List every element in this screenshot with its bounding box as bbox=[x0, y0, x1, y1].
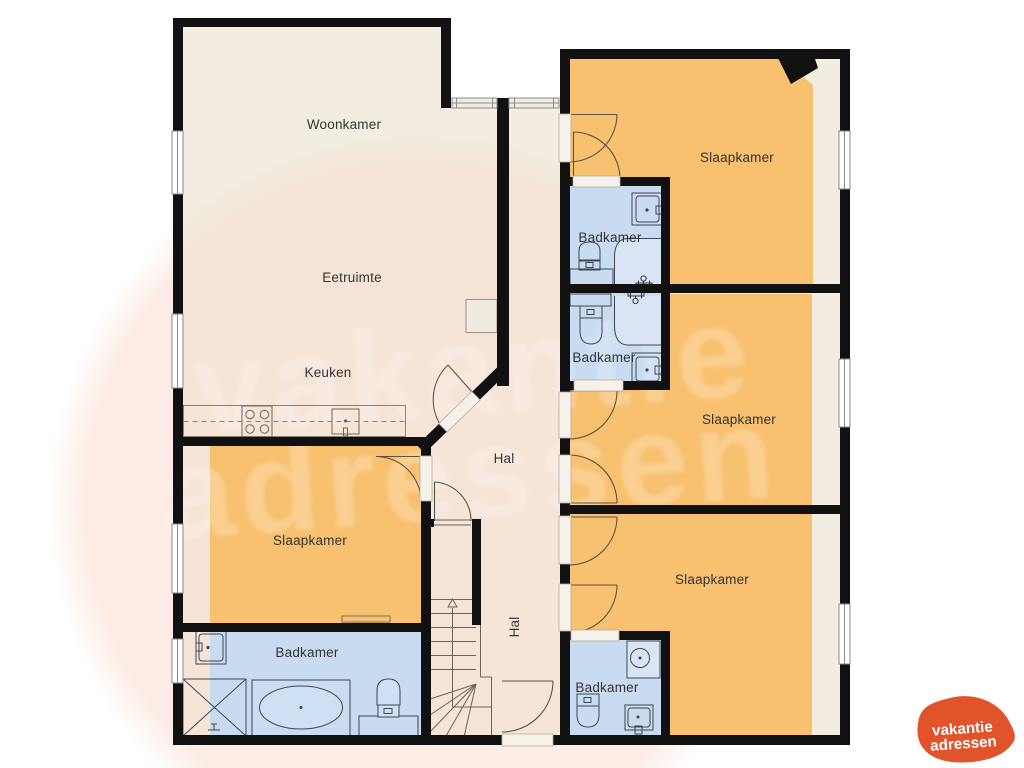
svg-text:Badkamer: Badkamer bbox=[575, 680, 638, 695]
svg-text:Badkamer: Badkamer bbox=[572, 350, 635, 365]
svg-text:Slaapkamer: Slaapkamer bbox=[702, 412, 776, 427]
svg-text:Badkamer: Badkamer bbox=[578, 230, 641, 245]
svg-text:Slaapkamer: Slaapkamer bbox=[675, 572, 749, 587]
svg-text:Woonkamer: Woonkamer bbox=[307, 117, 382, 132]
svg-text:Slaapkamer: Slaapkamer bbox=[273, 533, 347, 548]
svg-text:Keuken: Keuken bbox=[305, 365, 352, 380]
svg-text:Eetruimte: Eetruimte bbox=[322, 270, 382, 285]
svg-text:Badkamer: Badkamer bbox=[275, 645, 338, 660]
svg-text:Hal: Hal bbox=[507, 617, 522, 638]
svg-text:Hal: Hal bbox=[494, 451, 515, 466]
svg-text:Slaapkamer: Slaapkamer bbox=[700, 150, 774, 165]
